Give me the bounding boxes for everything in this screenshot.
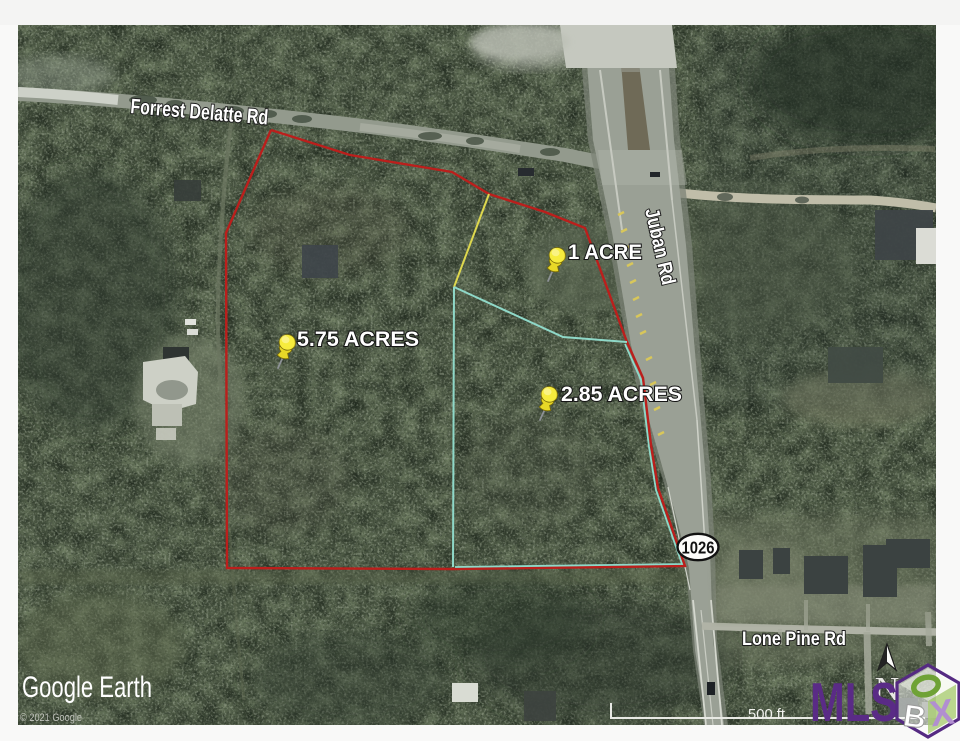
svg-text:© 2021 Google: © 2021 Google bbox=[20, 712, 82, 724]
svg-text:2.85 ACRES: 2.85 ACRES bbox=[561, 382, 682, 406]
svg-text:Google Earth: Google Earth bbox=[22, 671, 152, 704]
svg-text:MLS: MLS bbox=[810, 671, 898, 733]
svg-text:1026: 1026 bbox=[682, 538, 715, 558]
svg-text:1 ACRE: 1 ACRE bbox=[568, 241, 642, 264]
svg-text:5.75 ACRES: 5.75 ACRES bbox=[297, 327, 419, 351]
svg-text:Lone Pine Rd: Lone Pine Rd bbox=[742, 629, 846, 650]
svg-text:500 ft: 500 ft bbox=[748, 707, 785, 723]
